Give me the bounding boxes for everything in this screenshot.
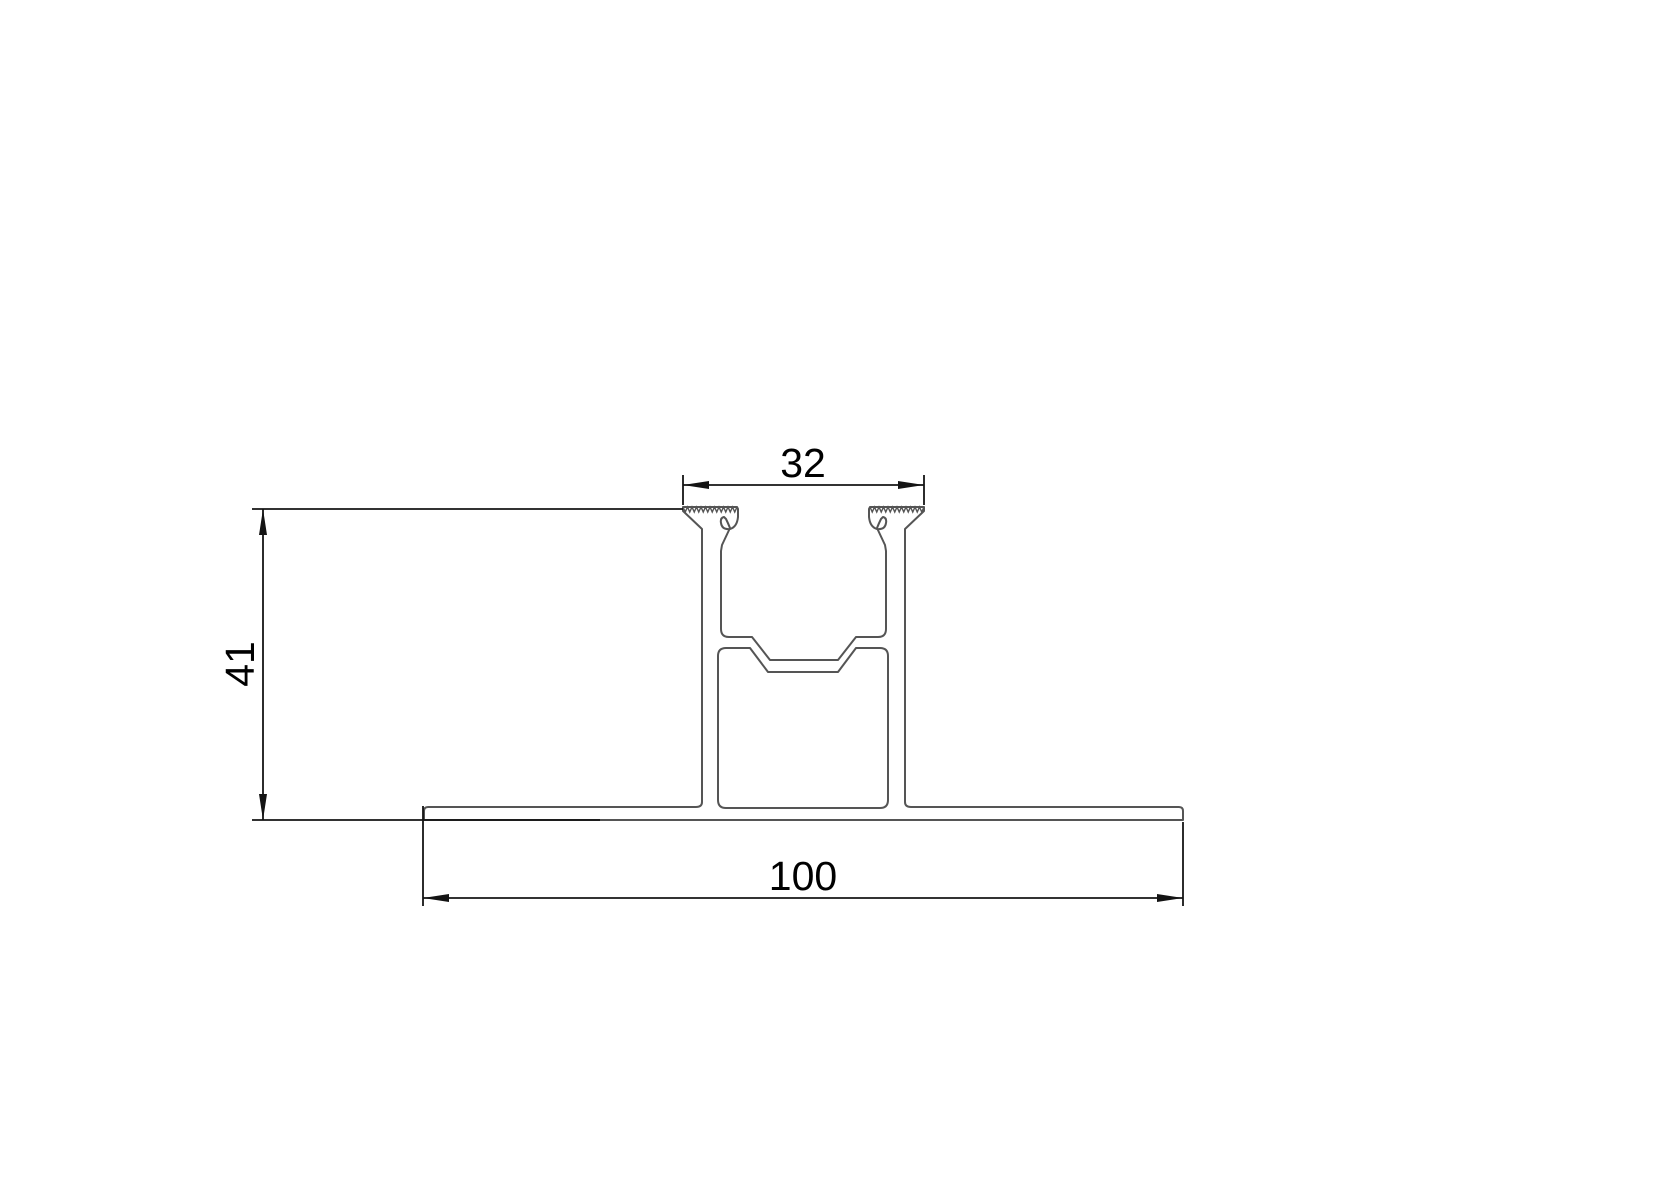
arrowhead-left [683,481,709,489]
arrowhead-right [1157,894,1183,902]
drawing-canvas: 32 41 100 [0,0,1680,1188]
dimension-height: 41 [217,509,683,820]
arrowhead-left [423,894,449,902]
height-dimension-label: 41 [217,641,263,687]
dimension-top-width: 32 [683,440,924,505]
arrowhead-right [898,481,924,489]
top-width-dimension-label: 32 [780,440,826,486]
arrowhead-top [259,509,267,535]
arrowhead-bottom [259,794,267,820]
profile-cross-section [424,507,1183,820]
base-width-dimension-label: 100 [769,853,837,899]
profile-outline [424,507,1183,820]
technical-drawing: 32 41 100 [0,0,1680,1188]
